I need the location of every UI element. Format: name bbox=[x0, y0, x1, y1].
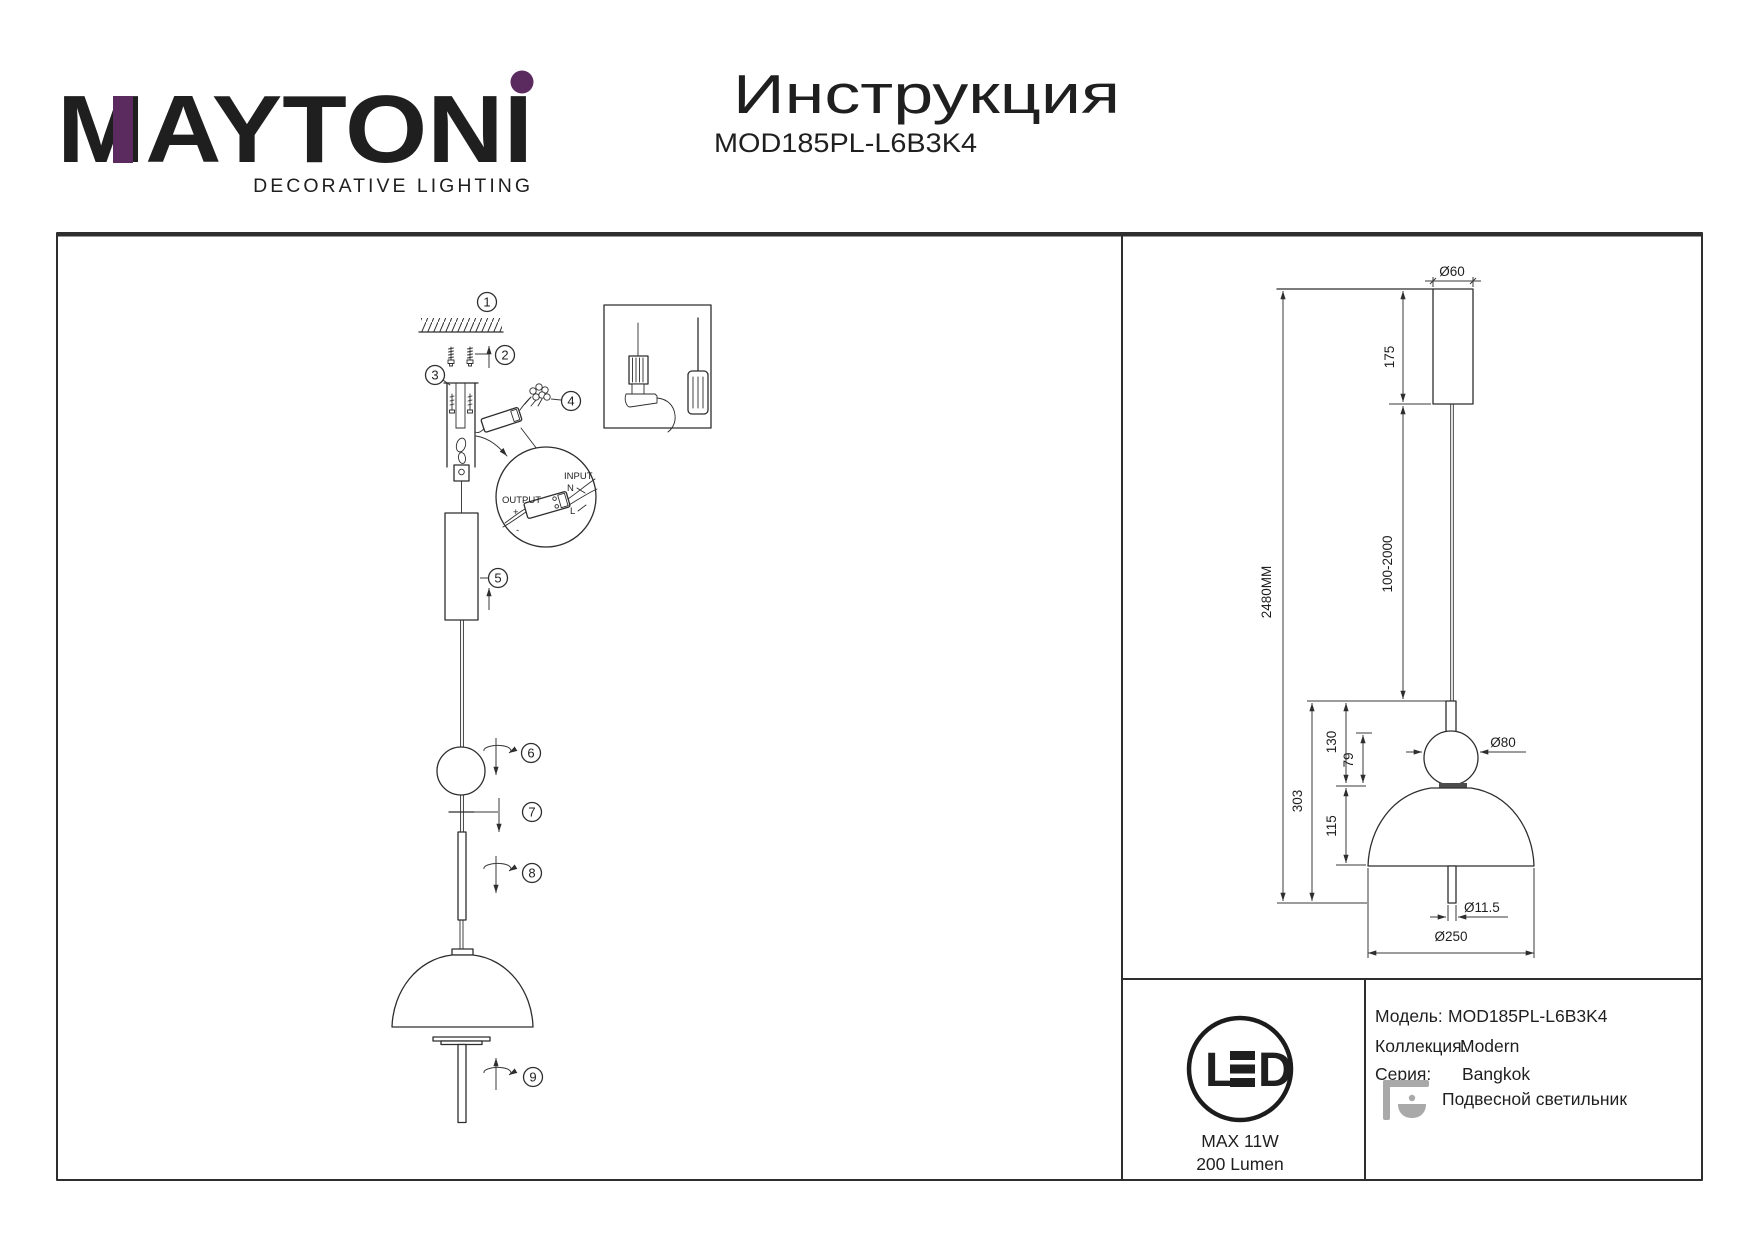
dim-rod-diameter: Ø11.5 bbox=[1430, 900, 1508, 921]
svg-text:1: 1 bbox=[483, 295, 490, 310]
step-8-badge: 8 bbox=[523, 864, 542, 883]
cable-loop bbox=[455, 437, 467, 453]
step-1-badge: 1 bbox=[478, 293, 497, 312]
spec-series-value: Bangkok bbox=[1462, 1064, 1530, 1084]
max-power-text: MAX 11W bbox=[1201, 1131, 1279, 1151]
svg-text:5: 5 bbox=[494, 571, 501, 586]
svg-text:2: 2 bbox=[501, 348, 508, 363]
mounting-screws bbox=[448, 346, 489, 368]
finial-rod bbox=[458, 1045, 466, 1123]
screwdriver bbox=[688, 318, 708, 414]
dim-top-to-dome: 130 bbox=[1324, 703, 1346, 783]
step-3-badge: 3 bbox=[426, 366, 445, 385]
pendant-lamp-icon bbox=[1383, 1080, 1429, 1120]
wiring-harness bbox=[475, 384, 561, 456]
label-output-minus: - bbox=[516, 525, 519, 536]
logo-accent-dot bbox=[511, 71, 534, 94]
mounting-screw bbox=[467, 347, 473, 366]
svg-text:2480MM: 2480MM bbox=[1259, 566, 1274, 619]
svg-text:Ø250: Ø250 bbox=[1434, 929, 1467, 944]
doc-model-code: MOD185PL-L6B3K4 bbox=[714, 128, 977, 158]
svg-text:3: 3 bbox=[431, 368, 438, 383]
spec-model-label: Модель: bbox=[1375, 1006, 1443, 1026]
svg-text:175: 175 bbox=[1382, 346, 1397, 369]
led-letter-e-bar bbox=[1230, 1065, 1255, 1074]
dome-outline bbox=[1368, 788, 1534, 866]
svg-text:Ø11.5: Ø11.5 bbox=[1464, 900, 1500, 915]
shade-neck-cap bbox=[452, 949, 473, 955]
svg-text:9: 9 bbox=[529, 1070, 536, 1085]
svg-text:Ø80: Ø80 bbox=[1490, 735, 1516, 750]
label-output-plus: + bbox=[513, 507, 519, 518]
led-badge: L D bbox=[1189, 1018, 1293, 1120]
tools-inset-box bbox=[604, 305, 711, 432]
label-input: INPUT bbox=[564, 471, 593, 482]
step-9-badge: 9 bbox=[524, 1068, 543, 1087]
dimension-drawing: Ø60 175 100-2000 2480MM 303 bbox=[1259, 264, 1534, 958]
svg-text:Ø60: Ø60 bbox=[1439, 264, 1465, 279]
wiring-detail-circle: INPUT N L OUTPUT + - bbox=[496, 447, 597, 547]
dome-shade bbox=[392, 955, 533, 1027]
rotate-glyph bbox=[484, 856, 511, 893]
dim-canopy-height: 175 bbox=[1382, 291, 1431, 404]
adjuster-sphere bbox=[437, 747, 485, 795]
wire-connector-cluster bbox=[525, 384, 550, 406]
anchor-screw bbox=[468, 394, 473, 413]
strain-relief-block bbox=[454, 465, 469, 481]
step-2-badge: 2 bbox=[496, 346, 515, 365]
dim-sphere-to-dome: 79 bbox=[1341, 735, 1363, 783]
step-6-badge: 6 bbox=[522, 744, 541, 763]
doc-header: Инструкция MOD185PL-L6B3K4 bbox=[714, 63, 1120, 158]
spec-collection-label: Коллекция: bbox=[1375, 1036, 1467, 1056]
dim-cable-length: 100-2000 bbox=[1380, 406, 1403, 699]
sphere-outline bbox=[1424, 731, 1478, 785]
label-output: OUTPUT bbox=[502, 495, 541, 506]
ceiling-hatch bbox=[419, 318, 503, 332]
svg-text:130: 130 bbox=[1324, 731, 1339, 754]
dim-canopy-diameter: Ø60 bbox=[1425, 264, 1481, 287]
instruction-drawing: MAYTONI DECORATIVE LIGHTING Инструкция M… bbox=[0, 0, 1754, 1241]
logo-accent-bar bbox=[113, 96, 133, 163]
brand-tagline: DECORATIVE LIGHTING bbox=[253, 175, 533, 197]
svg-text:7: 7 bbox=[528, 805, 535, 820]
mounting-screw bbox=[448, 347, 454, 366]
rotate-glyph bbox=[484, 738, 511, 775]
dim-total-height: 2480MM bbox=[1259, 291, 1283, 901]
svg-text:303: 303 bbox=[1290, 790, 1305, 813]
led-letter-e-bar bbox=[1230, 1078, 1255, 1087]
led-letter-e-bar bbox=[1230, 1051, 1255, 1060]
led-letter-d: D bbox=[1258, 1044, 1293, 1097]
spec-table: L D MAX 11W 200 Lumen Модель: MOD185PL-L… bbox=[1189, 1006, 1627, 1174]
dim-dome-height: 115 bbox=[1324, 788, 1346, 863]
anchor-screw bbox=[450, 394, 455, 413]
assembly-diagram: 1 bbox=[392, 293, 711, 1123]
instruction-sheet: MAYTONI DECORATIVE LIGHTING Инструкция M… bbox=[0, 0, 1754, 1241]
lumen-text: 200 Lumen bbox=[1196, 1154, 1284, 1174]
label-input-n: N bbox=[567, 483, 574, 494]
fixture-stem bbox=[1446, 701, 1456, 732]
dim-fixture-height: 303 bbox=[1290, 703, 1312, 901]
doc-title: Инструкция bbox=[733, 63, 1120, 125]
led-letter-l: L bbox=[1205, 1044, 1234, 1097]
stem-rod bbox=[458, 832, 466, 920]
spec-model-value: MOD185PL-L6B3K4 bbox=[1448, 1006, 1608, 1026]
step-5-badge: 5 bbox=[489, 569, 508, 588]
bottom-rod bbox=[1448, 866, 1456, 903]
svg-text:8: 8 bbox=[528, 866, 535, 881]
driver-box bbox=[481, 407, 522, 432]
spec-type-value: Подвесной светильник bbox=[1442, 1089, 1627, 1109]
step-4-badge: 4 bbox=[562, 392, 581, 411]
detail-pointer-arrow bbox=[476, 436, 507, 456]
svg-text:100-2000: 100-2000 bbox=[1380, 535, 1395, 592]
svg-text:115: 115 bbox=[1324, 815, 1339, 837]
svg-text:4: 4 bbox=[567, 394, 574, 409]
driver-housing-cylinder bbox=[445, 513, 478, 620]
canopy-outline bbox=[1433, 289, 1473, 404]
step-7-badge: 7 bbox=[523, 803, 542, 822]
rotate-glyph bbox=[484, 1058, 511, 1090]
label-input-l: L bbox=[570, 506, 575, 517]
svg-text:6: 6 bbox=[527, 746, 534, 761]
svg-text:79: 79 bbox=[1341, 752, 1356, 767]
cable-loop bbox=[458, 452, 467, 464]
cable-gripper bbox=[625, 323, 675, 432]
canopy-bracket bbox=[443, 380, 478, 481]
brand-logo: MAYTONI DECORATIVE LIGHTING bbox=[57, 71, 534, 198]
spec-collection-value: Modern bbox=[1460, 1036, 1519, 1056]
